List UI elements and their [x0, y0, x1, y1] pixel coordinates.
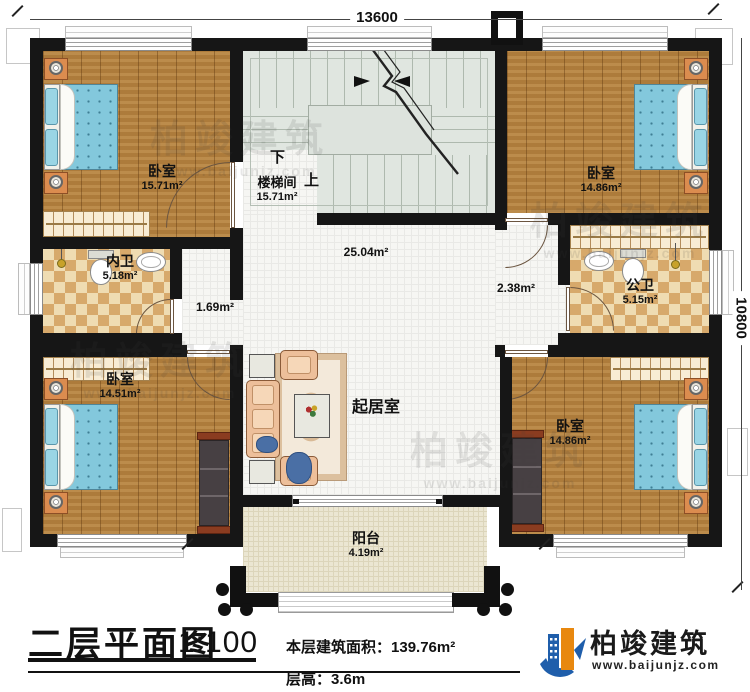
column-base — [501, 583, 514, 596]
flower-decor — [304, 404, 320, 418]
stair-down-label: 下 — [270, 146, 285, 167]
room-label-bedroom-tl: 卧室15.71m² — [142, 163, 183, 193]
bed-pillow — [694, 449, 707, 486]
nightstand — [44, 492, 68, 514]
bed-fold — [60, 404, 75, 490]
column-base — [477, 603, 490, 616]
wall-bedbr-hall — [500, 357, 512, 495]
column-base — [216, 583, 229, 596]
balcony-sliding-door — [292, 495, 443, 507]
room-label-stairwell: 楼梯间15.71m² — [257, 175, 298, 204]
lamp-icon — [49, 175, 63, 189]
cabinet-cap — [197, 526, 231, 534]
bed-pillow — [45, 129, 58, 166]
corner-tick — [11, 5, 23, 17]
floor-area-label: 本层建筑面积： — [286, 639, 391, 656]
wall-bath-inner-right — [170, 249, 182, 299]
balcony-column — [230, 566, 246, 607]
wall-balcony-left — [230, 495, 243, 547]
room-label-bedroom-bl: 卧室14.51m² — [100, 371, 141, 401]
floor-area-value: 139.76m² — [391, 639, 455, 656]
wardrobe — [43, 211, 150, 237]
dimension-label-right: 10800 — [733, 291, 750, 345]
wall-bedbl-hall — [230, 357, 243, 495]
floor-height-label: 层高： — [286, 671, 331, 688]
title-underline-long — [28, 671, 520, 673]
balcony-column — [484, 566, 500, 607]
dimension-label-top: 13600 — [350, 9, 404, 26]
stair-up-label: 上 — [304, 169, 319, 190]
room-label-living: 起居室 — [352, 393, 400, 417]
bed-pillow — [694, 129, 707, 166]
wall-bedbl-top-left — [30, 345, 187, 357]
nightstand — [684, 492, 708, 514]
eaves-outline — [727, 428, 748, 476]
door-leaf-bath-inner — [170, 299, 174, 334]
lamp-icon — [689, 495, 703, 509]
wall-corr-bathpub — [558, 225, 570, 285]
chimney — [491, 11, 523, 45]
lamp-icon — [49, 495, 63, 509]
scale-label: 1:100 — [178, 626, 258, 660]
nightstand — [684, 172, 708, 194]
logo-name: 柏竣建筑 — [590, 622, 710, 661]
window-bottom-bedroom-br — [553, 534, 688, 547]
wardrobe — [570, 225, 709, 249]
sliding-door-stop — [436, 499, 442, 504]
door-leaf-bath-public — [566, 287, 570, 331]
area-label-corridor-left: 1.69m² — [196, 300, 234, 314]
wall-bathpub-bottom — [558, 333, 712, 345]
nightstand — [44, 58, 68, 80]
lamp-icon — [689, 381, 703, 395]
lamp-icon — [689, 175, 703, 189]
wall-bedbr-top-right — [548, 345, 712, 357]
nightstand — [684, 378, 708, 400]
corner-tick — [707, 3, 719, 15]
person-figure — [256, 436, 278, 453]
room-label-balcony: 阳台4.19m² — [349, 530, 384, 560]
bed-pillow — [45, 88, 58, 125]
tv-cabinet — [512, 438, 542, 524]
wall-bath-inner-bottom — [30, 333, 182, 345]
eaves-outline — [2, 508, 22, 552]
company-logo: 柏竣建筑 www.baijunjz.com — [534, 620, 744, 684]
sink-icon — [584, 251, 614, 271]
floor-height-line: 层高：3.6m — [286, 668, 365, 689]
entry-steps — [278, 592, 454, 613]
column-base — [218, 603, 231, 616]
window-top-bedroom-tl — [65, 38, 192, 51]
column-base — [499, 603, 512, 616]
window-bottom-bedroom-bl — [57, 534, 187, 547]
logo-website: www.baijunjz.com — [592, 658, 720, 672]
logo-building-icon — [534, 620, 586, 680]
stair-direction-arrows — [340, 46, 505, 176]
cabinet-cap — [510, 430, 544, 438]
door-leaf-bedroom-tr — [505, 218, 548, 222]
wall-bedtr-bottom-left — [495, 213, 505, 225]
window-bath-public — [709, 250, 722, 315]
window-sill — [65, 26, 192, 38]
pull-cord — [675, 243, 676, 261]
lamp-icon — [49, 381, 63, 395]
wall-bedbl-top-right — [230, 345, 243, 357]
coffee-table — [294, 394, 330, 438]
door-leaf-bedroom-tl — [231, 162, 235, 228]
cabinet-cap — [510, 524, 544, 532]
room-label-bath-inner: 内卫5.18m² — [103, 253, 138, 283]
area-label-corridor-right: 2.38m² — [497, 281, 535, 295]
bed-pillow — [45, 408, 58, 445]
sliding-door-stop — [293, 499, 299, 504]
wall-balcony-right — [499, 495, 512, 547]
wall-bedtl-stair-upper — [230, 38, 243, 162]
window-sill — [542, 26, 668, 38]
room-label-bath-public: 公卫5.15m² — [623, 277, 658, 307]
window-top-bedroom-tr — [542, 38, 668, 51]
nightstand — [44, 172, 68, 194]
side-table — [249, 460, 275, 484]
wall-bedbr-top-left — [495, 345, 505, 357]
sink-icon — [136, 252, 166, 272]
armchair — [280, 350, 318, 380]
nightstand — [44, 378, 68, 400]
floor-area-line: 本层建筑面积：139.76m² — [286, 636, 455, 657]
floor-plan-canvas: 13600 10800 — [0, 0, 750, 692]
bed-fold — [60, 84, 75, 170]
floor-height-value: 3.6m — [331, 671, 365, 688]
room-label-bedroom-br: 卧室14.86m² — [550, 418, 591, 448]
side-table — [249, 354, 275, 378]
bed-fold — [677, 404, 692, 490]
nightstand — [684, 58, 708, 80]
window-sill — [18, 263, 30, 315]
toilet-icon — [620, 249, 646, 258]
window-sill — [556, 547, 685, 558]
tv-cabinet — [199, 440, 229, 526]
wall-bedtr-bottom-right — [548, 213, 712, 225]
room-label-bedroom-tr: 卧室14.86m² — [581, 165, 622, 195]
lamp-icon — [49, 61, 63, 75]
person-figure — [286, 452, 312, 484]
bed-pillow — [694, 88, 707, 125]
window-sill — [307, 26, 432, 38]
door-leaf-bedroom-bl — [187, 350, 230, 354]
wall-bedtl-bath — [30, 237, 243, 249]
wall-stair-right — [495, 38, 507, 230]
area-label-hall: 25.04m² — [344, 245, 389, 259]
window-bath-inner — [30, 263, 43, 315]
cabinet-cap — [197, 432, 231, 440]
column-base — [240, 603, 253, 616]
lamp-icon — [689, 61, 703, 75]
bed-pillow — [694, 408, 707, 445]
door-leaf-bedroom-br — [505, 350, 548, 354]
drain-icon — [671, 260, 680, 269]
window-sill — [60, 547, 184, 558]
bed-pillow — [45, 449, 58, 486]
wall-stair-bottom — [317, 213, 495, 225]
window-top-stairwell — [307, 38, 432, 51]
bed-fold — [677, 84, 692, 170]
drain-icon — [57, 259, 66, 268]
